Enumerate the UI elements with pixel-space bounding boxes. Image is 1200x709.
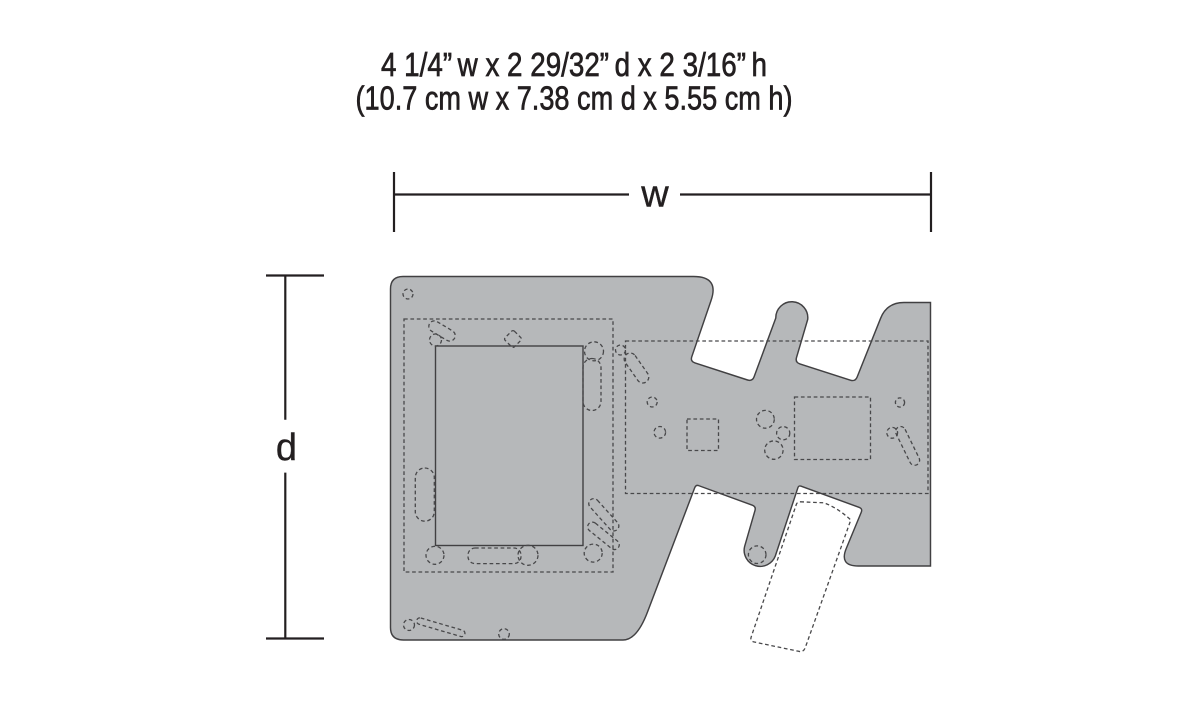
svg-text:4 1/4” w x 2 29/32” d x 2 3/16: 4 1/4” w x 2 29/32” d x 2 3/16” h [381,47,767,84]
svg-text:d: d [276,427,297,469]
svg-text:(10.7 cm w x 7.38 cm d x 5.55: (10.7 cm w x 7.38 cm d x 5.55 cm h) [356,81,793,118]
svg-text:w: w [640,174,669,216]
